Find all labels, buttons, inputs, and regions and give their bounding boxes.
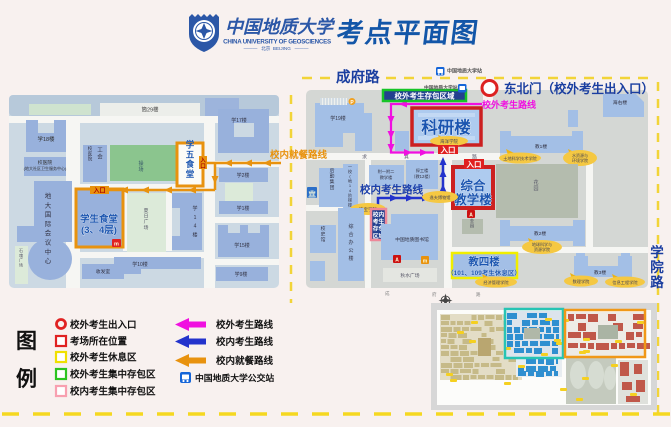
svg-text:成府路: 成府路 bbox=[336, 68, 380, 86]
svg-text:秋水广场: 秋水广场 bbox=[400, 272, 419, 279]
svg-text:附一附二: 附一附二 bbox=[378, 168, 395, 175]
svg-text:校医院: 校医院 bbox=[88, 145, 93, 163]
svg-text:花园: 花园 bbox=[533, 179, 538, 192]
svg-text:学18楼: 学18楼 bbox=[37, 135, 55, 143]
svg-text:——— 北京 BEIJING ———: ——— 北京 BEIJING ——— bbox=[244, 45, 309, 52]
svg-text:🏛: 🏛 bbox=[308, 190, 317, 198]
svg-text:学10楼: 学10楼 bbox=[132, 261, 148, 268]
svg-text:中国地质大学站: 中国地质大学站 bbox=[424, 84, 458, 91]
svg-text:中国地质大学站: 中国地质大学站 bbox=[447, 68, 482, 75]
svg-text:科研楼: 科研楼 bbox=[421, 117, 471, 137]
svg-text:路: 路 bbox=[650, 274, 664, 290]
svg-text:信息工程学院: 信息工程学院 bbox=[612, 279, 638, 286]
svg-text:学五食堂: 学五食堂 bbox=[186, 140, 195, 179]
svg-text:例: 例 bbox=[16, 367, 37, 391]
svg-text:校内考生集中存包区: 校内考生集中存包区 bbox=[70, 386, 156, 398]
svg-text:m: m bbox=[423, 259, 428, 265]
svg-text:操场: 操场 bbox=[138, 160, 143, 173]
svg-text:夏日广场: 夏日广场 bbox=[144, 208, 149, 231]
svg-text:入口: 入口 bbox=[466, 160, 482, 169]
svg-text:图: 图 bbox=[16, 330, 37, 353]
svg-text:土地科学技术学院: 土地科学技术学院 bbox=[503, 155, 537, 162]
svg-text:东北门（校外考生出入口）: 东北门（校外考生出入口） bbox=[504, 81, 654, 96]
svg-text:入口: 入口 bbox=[92, 188, 105, 195]
svg-text:工会: 工会 bbox=[97, 147, 103, 160]
svg-text:石魂广场: 石魂广场 bbox=[19, 248, 23, 267]
svg-text:入口: 入口 bbox=[440, 146, 456, 155]
svg-text:CHINA UNIVERSITY OF GEOSCIENCE: CHINA UNIVERSITY OF GEOSCIENCES bbox=[223, 39, 331, 46]
svg-text:筒29楼: 筒29楼 bbox=[141, 106, 159, 114]
svg-text:环境学院: 环境学院 bbox=[572, 157, 588, 163]
svg-text:院: 院 bbox=[650, 259, 664, 275]
svg-text:综合: 综合 bbox=[460, 178, 486, 193]
svg-text:海洋学院: 海洋学院 bbox=[440, 138, 458, 145]
svg-text:求: 求 bbox=[362, 154, 367, 161]
svg-text:学: 学 bbox=[650, 244, 664, 260]
svg-text:后勤集团: 后勤集团 bbox=[330, 167, 335, 191]
svg-text:校内考生路线: 校内考生路线 bbox=[216, 336, 274, 348]
svg-text:数理学院: 数理学院 bbox=[573, 278, 591, 285]
svg-text:考场所在位置: 考场所在位置 bbox=[70, 336, 128, 348]
svg-text:资源学院: 资源学院 bbox=[534, 246, 550, 252]
svg-text:海右楼: 海右楼 bbox=[613, 99, 628, 106]
svg-text:校外考生存包区域: 校外考生存包区域 bbox=[395, 91, 455, 101]
svg-text:学15楼: 学15楼 bbox=[234, 242, 250, 249]
svg-text:教1楼: 教1楼 bbox=[535, 143, 547, 150]
svg-text:考点平面图: 考点平面图 bbox=[335, 17, 481, 48]
svg-text:探工楼: 探工楼 bbox=[416, 167, 429, 174]
svg-text:A: A bbox=[395, 258, 399, 264]
svg-text:m: m bbox=[114, 242, 119, 248]
svg-text:教2楼: 教2楼 bbox=[534, 230, 546, 237]
svg-text:成: 成 bbox=[385, 290, 390, 297]
svg-text:学2楼: 学2楼 bbox=[237, 172, 250, 179]
svg-text:校史馆: 校史馆 bbox=[321, 225, 326, 243]
svg-text:（教12楼）: （教12楼） bbox=[411, 173, 432, 180]
svg-text:学生食堂: 学生食堂 bbox=[80, 213, 119, 225]
svg-text:校内: 校内 bbox=[373, 210, 385, 218]
svg-text:中国地质大学: 中国地质大学 bbox=[225, 17, 336, 37]
svg-text:入口: 入口 bbox=[199, 157, 206, 170]
svg-text:学17楼: 学17楼 bbox=[231, 117, 247, 124]
svg-text:(3、4层): (3、4层) bbox=[81, 225, 117, 236]
svg-text:路: 路 bbox=[476, 291, 481, 298]
svg-text:校内就餐路线: 校内就餐路线 bbox=[270, 149, 328, 161]
svg-text:府: 府 bbox=[432, 291, 437, 298]
svg-text:综合办公楼: 综合办公楼 bbox=[348, 223, 353, 262]
svg-text:教学楼: 教学楼 bbox=[380, 174, 393, 181]
svg-text:(地大社区卫生服务中心): (地大社区卫生服务中心) bbox=[24, 165, 67, 171]
svg-text:中国地质大学公交站: 中国地质大学公交站 bbox=[195, 372, 274, 383]
svg-text:学19楼: 学19楼 bbox=[330, 115, 346, 122]
svg-text:教四楼: 教四楼 bbox=[467, 255, 500, 268]
svg-text:逸夫博物馆: 逸夫博物馆 bbox=[430, 194, 451, 201]
svg-text:校外考生休息区: 校外考生休息区 bbox=[70, 352, 137, 364]
svg-text:校外考生出入口: 校外考生出入口 bbox=[70, 319, 137, 331]
svg-text:校医院: 校医院 bbox=[38, 159, 53, 166]
svg-text:经济管理学院: 经济管理学院 bbox=[483, 279, 509, 286]
svg-text:学9楼: 学9楼 bbox=[235, 271, 248, 278]
svg-text:收发室: 收发室 bbox=[96, 268, 111, 275]
svg-text:教3楼: 教3楼 bbox=[594, 269, 606, 276]
svg-text:校外考生路线: 校外考生路线 bbox=[216, 319, 274, 331]
svg-text:教学楼: 教学楼 bbox=[453, 192, 492, 207]
svg-text:校内考生路线: 校内考生路线 bbox=[360, 183, 423, 196]
svg-text:校内就餐路线: 校内就餐路线 bbox=[216, 355, 274, 367]
svg-text:校外考生路线: 校外考生路线 bbox=[482, 99, 536, 110]
svg-text:中国地质图书馆: 中国地质图书馆 bbox=[395, 236, 429, 243]
svg-text:校外考生集中存包区: 校外考生集中存包区 bbox=[70, 369, 156, 381]
svg-text:学1楼: 学1楼 bbox=[237, 205, 250, 212]
